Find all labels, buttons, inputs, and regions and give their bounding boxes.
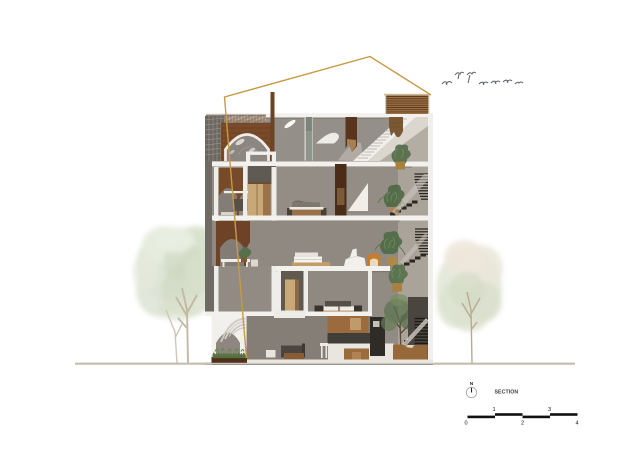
svg-text:4: 4 bbox=[575, 421, 578, 427]
svg-text:3: 3 bbox=[548, 407, 551, 413]
svg-text:N: N bbox=[470, 381, 474, 387]
svg-text:0: 0 bbox=[464, 421, 467, 427]
svg-text:2: 2 bbox=[521, 421, 524, 427]
svg-text:SECTION: SECTION bbox=[495, 390, 519, 396]
svg-text:1: 1 bbox=[492, 407, 495, 413]
